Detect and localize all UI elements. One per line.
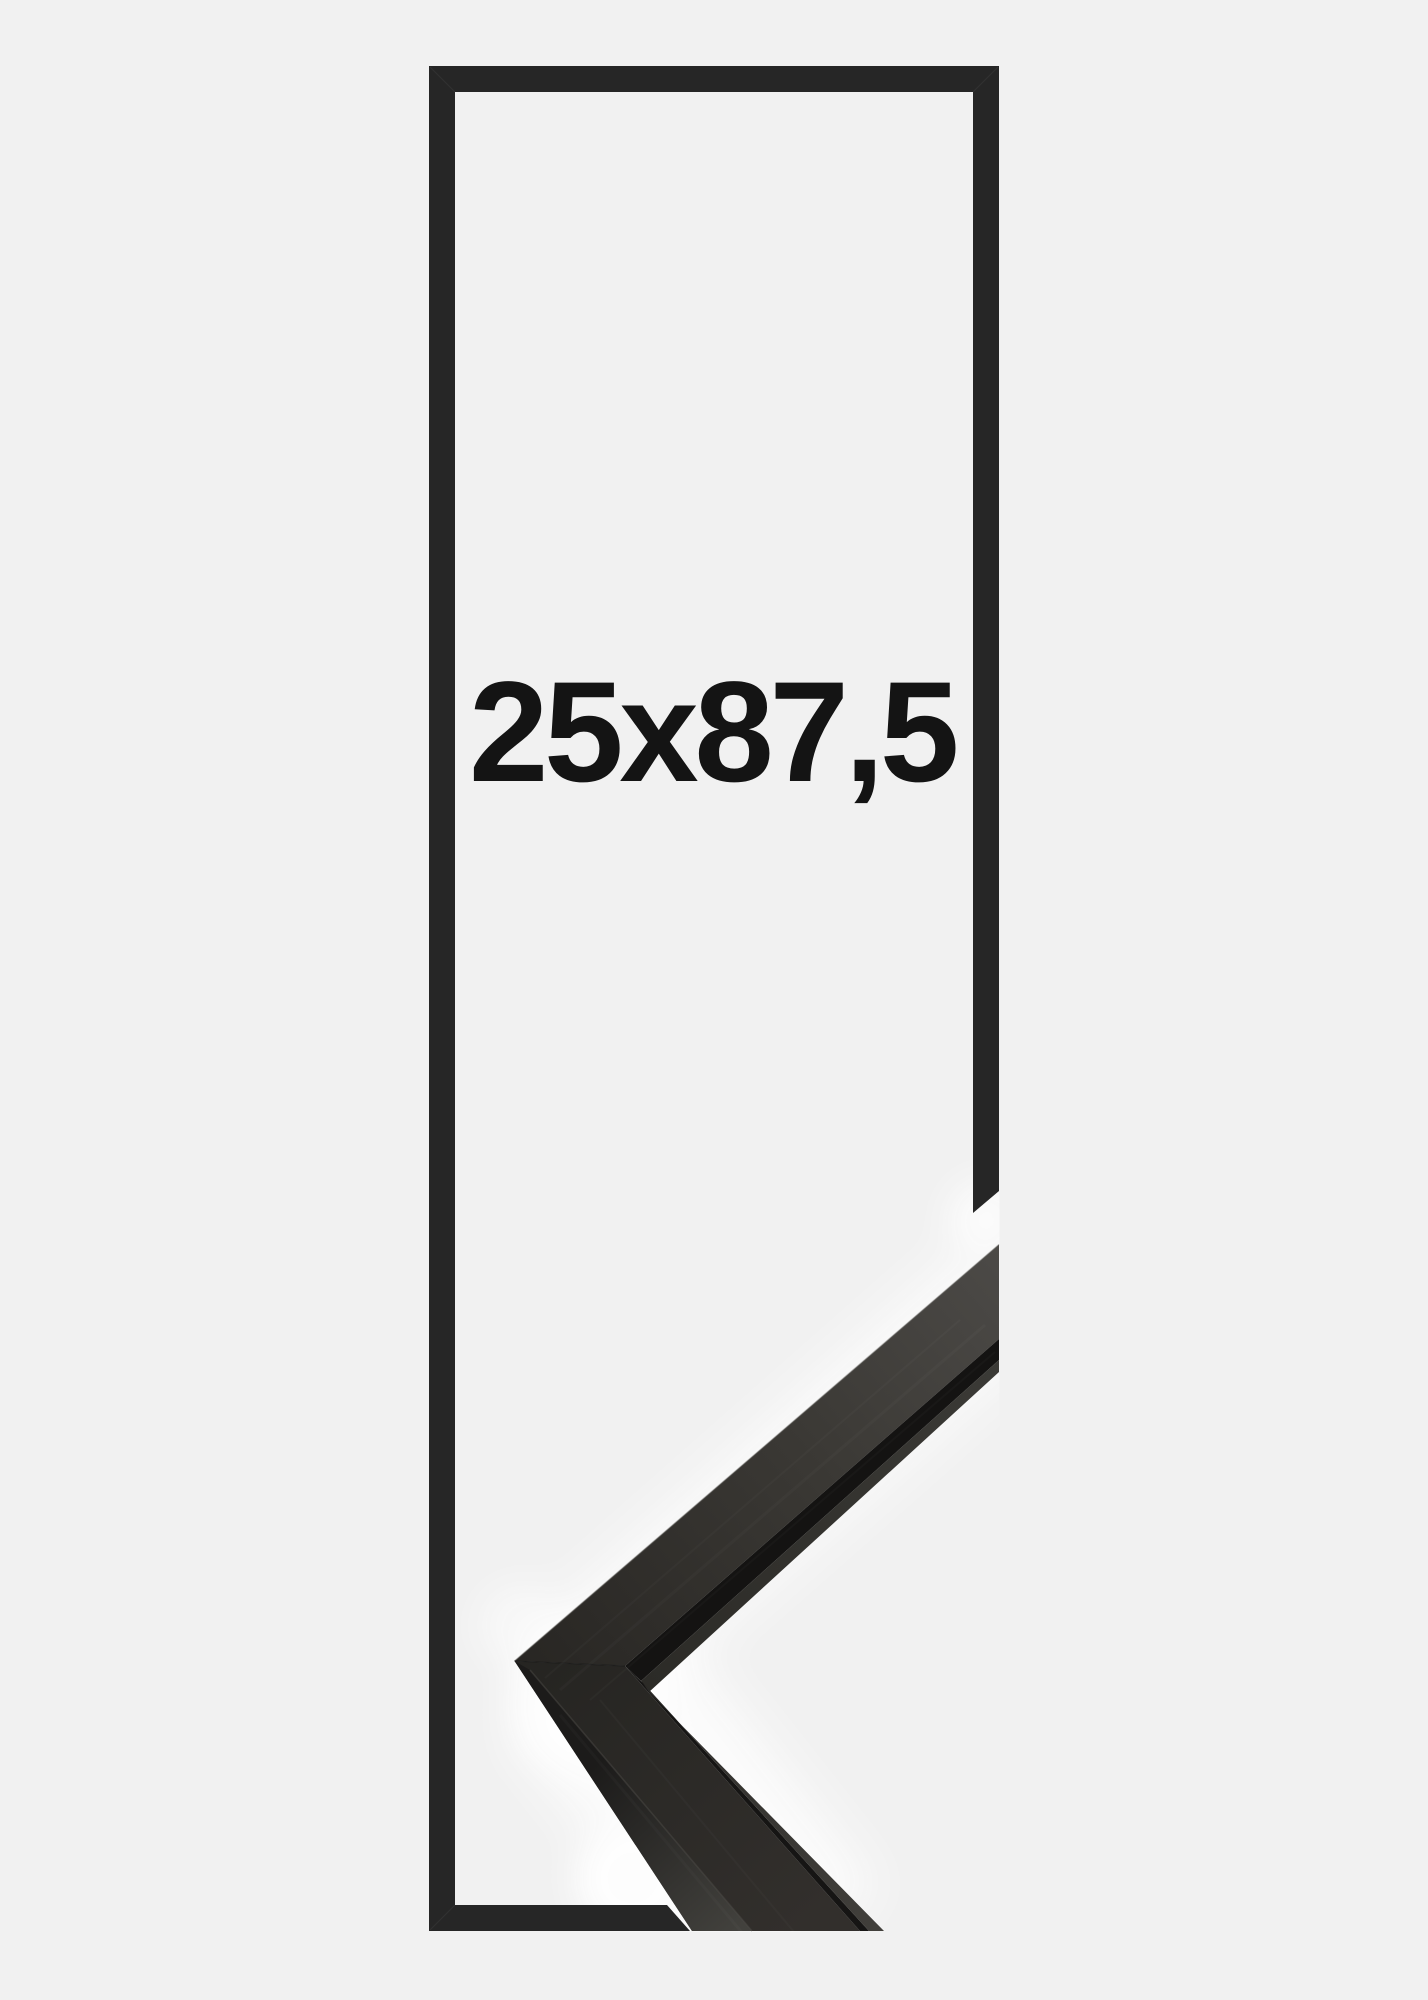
svg-text:25x87,5: 25x87,5	[469, 653, 956, 812]
